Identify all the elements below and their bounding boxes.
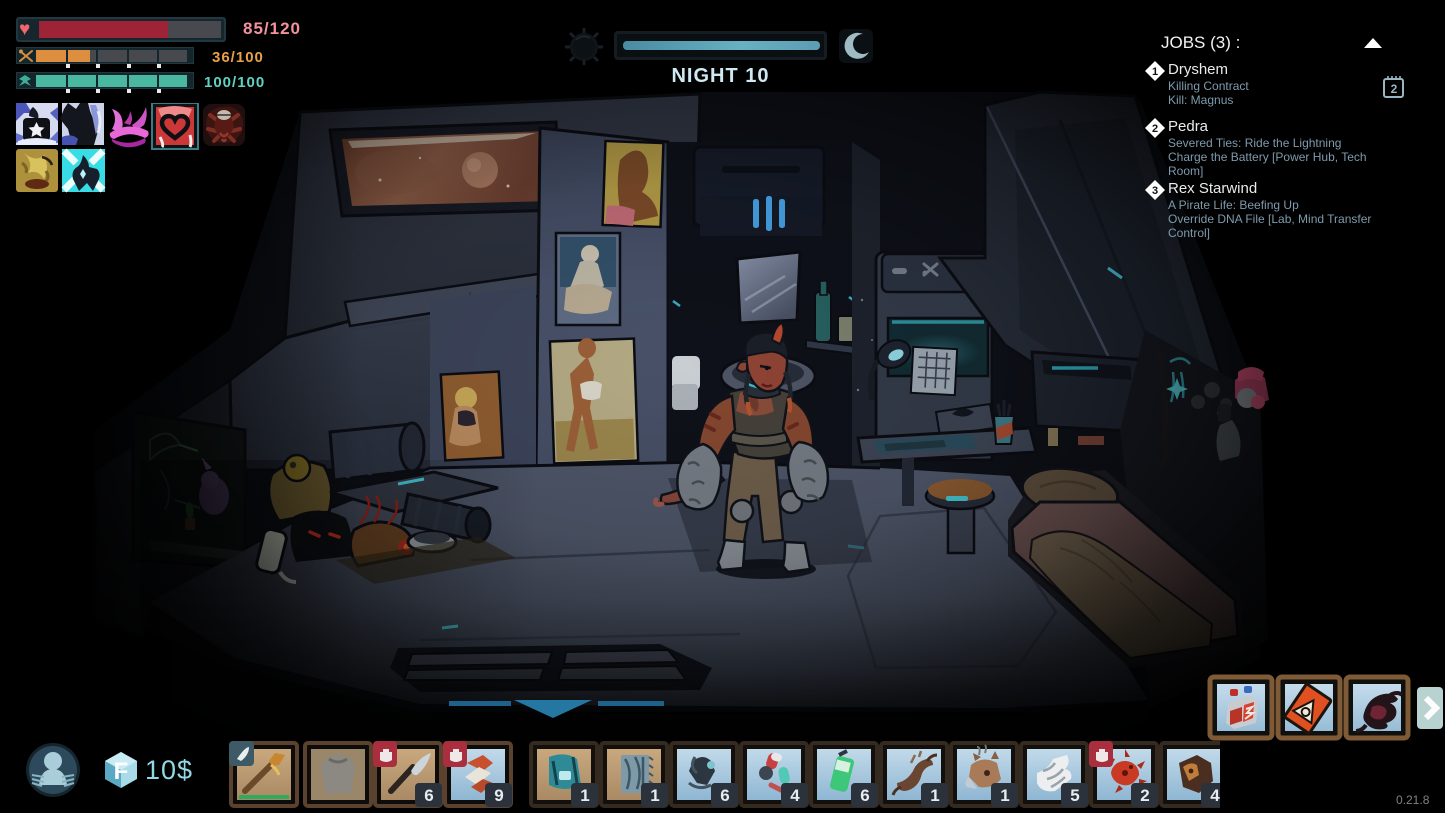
svg-text:1: 1 [930, 786, 939, 805]
svg-text:6: 6 [720, 786, 729, 805]
svg-text:F: F [114, 758, 129, 785]
svg-text:2: 2 [1152, 123, 1158, 135]
svg-text:1: 1 [580, 786, 589, 805]
svg-text:4: 4 [790, 786, 800, 805]
svg-text:1: 1 [1152, 66, 1158, 78]
svg-text:6: 6 [860, 786, 869, 805]
svg-text:9: 9 [494, 786, 503, 805]
svg-text:1: 1 [1000, 786, 1009, 805]
svg-text:2: 2 [1140, 786, 1149, 805]
svg-text:2: 2 [1391, 82, 1398, 96]
svg-text:4: 4 [1210, 786, 1220, 805]
svg-text:3: 3 [1152, 185, 1158, 197]
svg-text:6: 6 [424, 786, 433, 805]
svg-text:1: 1 [650, 786, 659, 805]
svg-text:5: 5 [1070, 786, 1079, 805]
